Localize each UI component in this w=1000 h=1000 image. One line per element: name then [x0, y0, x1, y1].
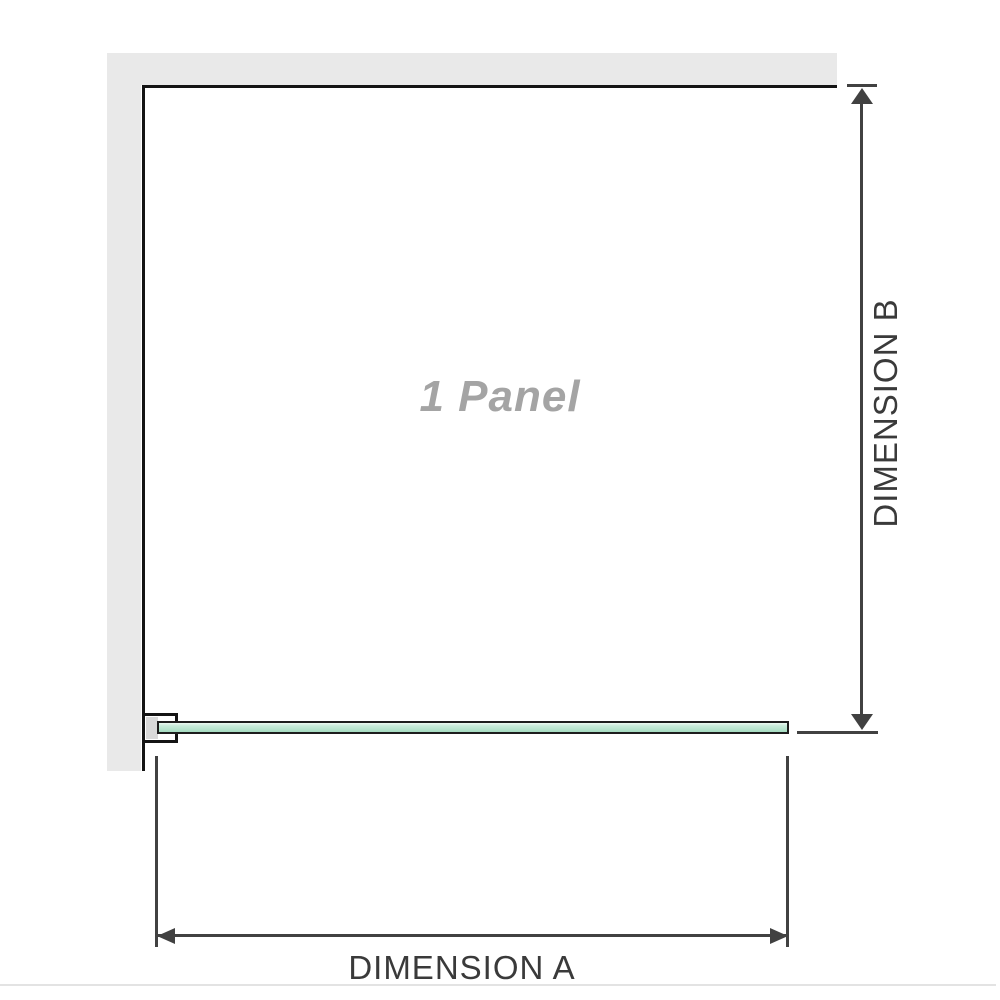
dimension-b-top-tick	[847, 84, 877, 87]
dimension-a-left-extension-line	[155, 756, 158, 947]
enclosure-edge-top	[143, 85, 837, 88]
wall-segment-left	[107, 53, 141, 771]
arrow-left-icon	[157, 928, 175, 944]
dimension-b-bottom-tick	[797, 731, 878, 734]
dimension-b-line	[860, 96, 863, 722]
dimension-b-label: DIMENSION B	[866, 263, 906, 563]
glass-panel	[157, 721, 789, 734]
dimension-a-right-extension-line	[786, 756, 789, 947]
dimension-a-label: DIMENSION A	[262, 948, 662, 988]
arrow-right-icon	[770, 928, 788, 944]
dimension-a-line	[157, 934, 788, 937]
arrow-down-icon	[851, 714, 873, 730]
wall-segment-top	[107, 53, 837, 85]
panel-count-label: 1 Panel	[300, 365, 700, 429]
arrow-up-icon	[851, 88, 873, 104]
enclosure-edge-left	[142, 85, 145, 771]
shower-screen-diagram: 1 Panel DIMENSION B DIMENSION A	[0, 0, 1000, 1000]
